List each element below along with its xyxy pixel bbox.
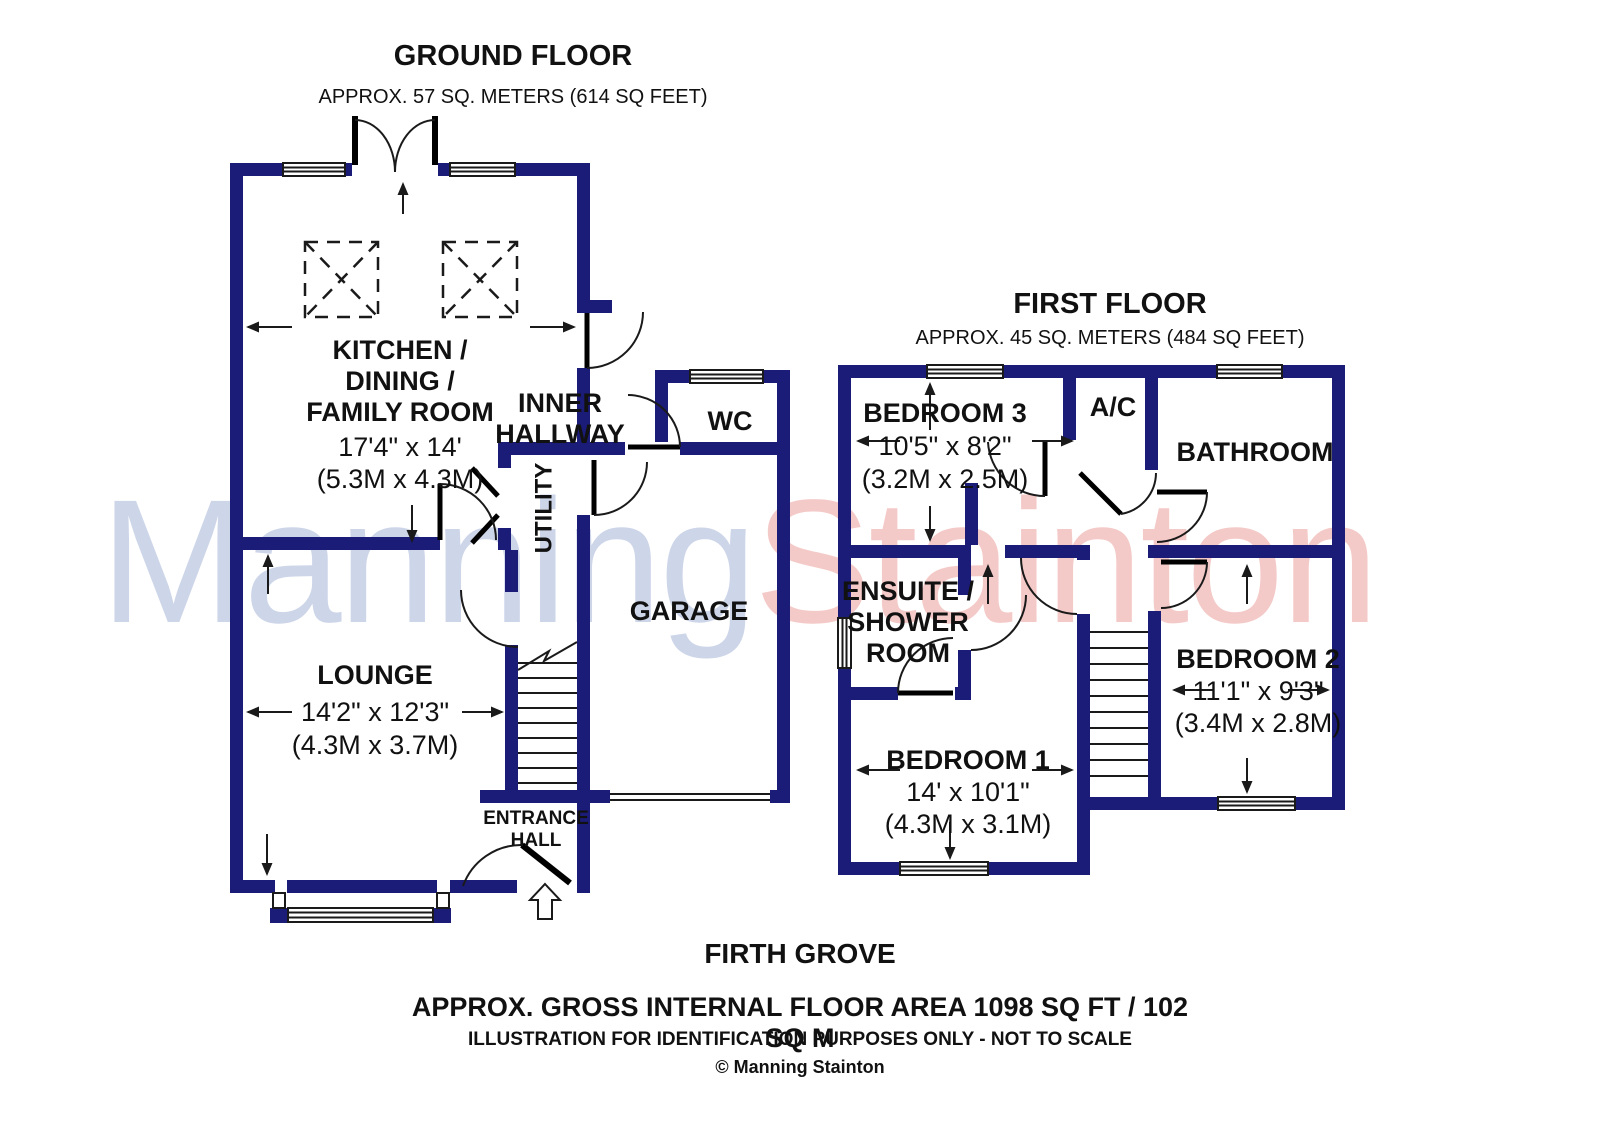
skylight-symbols [305, 242, 517, 317]
room-dims-kitchen-metric: (5.3M x 4.3M) [317, 464, 484, 495]
room-label-ac: A/C [1090, 392, 1137, 423]
room-dims-lounge-imperial: 14'2" x 12'3" [301, 697, 449, 728]
disclaimer-text: ILLUSTRATION FOR IDENTIFICATION PURPOSES… [468, 1029, 1132, 1051]
ground-floor-stairs [518, 642, 577, 783]
room-label-utility: UTILITY [529, 463, 560, 554]
ground-floor-area: APPROX. 57 SQ. METERS (614 SQ FEET) [319, 86, 708, 109]
room-label-lounge: LOUNGE [317, 660, 433, 691]
room-label-kitchen: KITCHEN / DINING / FAMILY ROOM [306, 335, 494, 428]
room-label-garage: GARAGE [630, 596, 749, 627]
first-floor-title: FIRST FLOOR [1013, 288, 1206, 321]
room-dims-bedroom1-imperial: 14' x 10'1" [906, 777, 1029, 808]
room-label-bedroom1: BEDROOM 1 [886, 745, 1050, 776]
room-dims-lounge-metric: (4.3M x 3.7M) [292, 730, 459, 761]
room-dims-bedroom1-metric: (4.3M x 3.1M) [885, 809, 1052, 840]
room-label-inner-hallway: INNER HALLWAY [495, 388, 625, 450]
room-dims-bedroom2-imperial: 11'1" x 9'3" [1192, 676, 1323, 707]
room-dims-bedroom3-imperial: 10'5" x 8'2" [878, 431, 1011, 462]
room-label-bedroom2: BEDROOM 2 [1176, 644, 1340, 675]
room-label-wc: WC [708, 406, 753, 437]
room-label-bathroom: BATHROOM [1177, 437, 1334, 468]
floorplan-page: ManningStainton [0, 0, 1600, 1130]
first-floor-area: APPROX. 45 SQ. METERS (484 SQ FEET) [916, 327, 1305, 350]
ground-floor-title: GROUND FLOOR [394, 40, 632, 73]
room-dims-kitchen-imperial: 17'4" x 14' [338, 432, 461, 463]
room-label-bedroom3: BEDROOM 3 [863, 398, 1027, 429]
room-dims-bedroom2-metric: (3.4M x 2.8M) [1175, 708, 1342, 739]
property-name: FIRTH GROVE [704, 938, 895, 970]
copyright-text: © Manning Stainton [715, 1057, 884, 1078]
room-label-entrance-hall: ENTRANCE HALL [483, 808, 589, 852]
room-label-ensuite: ENSUITE / SHOWER ROOM [842, 576, 974, 669]
room-dims-bedroom3-metric: (3.2M x 2.5M) [862, 464, 1029, 495]
entrance-arrow-icon [530, 884, 560, 919]
